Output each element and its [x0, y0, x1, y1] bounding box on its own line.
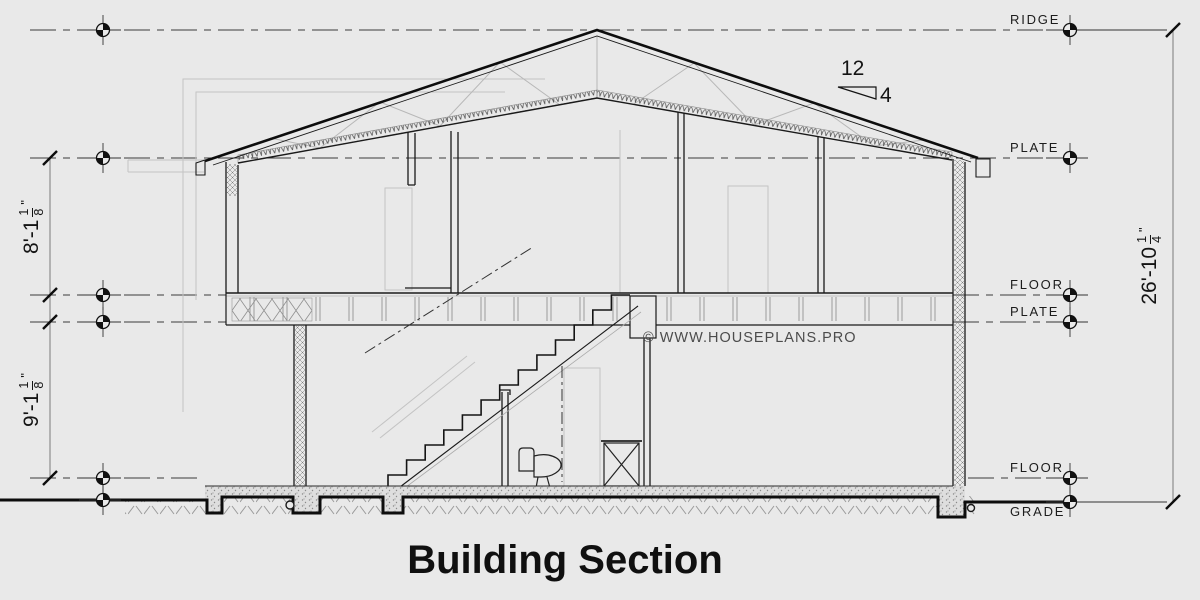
drain-symbol — [968, 505, 975, 512]
right-eave-gutter — [976, 159, 990, 177]
background-door — [728, 186, 768, 293]
stair-steps — [388, 295, 630, 490]
interior-wall-upper-2 — [818, 136, 824, 293]
pitch-triangle — [838, 87, 876, 99]
ceiling-line — [238, 98, 952, 163]
left-eave-gutter — [196, 160, 205, 175]
stairwell-wall — [405, 131, 458, 293]
level-label-floor-upper: FLOOR — [1010, 278, 1064, 291]
cabinet-symbol — [601, 441, 642, 486]
drain-symbol — [286, 501, 294, 509]
dimension-overall-height: 26'-1014" — [1135, 181, 1165, 351]
floor-insulation — [232, 298, 312, 321]
roof — [196, 30, 990, 177]
level-label-plate-lower: PLATE — [1010, 305, 1059, 318]
drawing-title: Building Section — [0, 538, 1130, 583]
building-section-sheet: RIDGE PLATE FLOOR PLATE FLOOR GRADE 8'-1… — [0, 0, 1200, 600]
floor-joists-right — [667, 297, 935, 321]
ceiling-insulation-right — [597, 90, 952, 160]
level-label-grade: GRADE — [1010, 505, 1065, 518]
dimension-lower-wall-height: 9'-118" — [17, 325, 47, 475]
level-lines — [30, 30, 1062, 478]
interior-wall-lower — [644, 338, 650, 486]
background-stair-rail — [372, 356, 475, 438]
ceiling-insulation-left — [238, 90, 597, 163]
datum-markers — [79, 15, 1088, 517]
headroom-line — [365, 247, 533, 353]
stair-stringer — [396, 306, 638, 490]
toilet-symbol — [519, 448, 561, 488]
background-structure — [128, 79, 768, 487]
level-label-plate-upper: PLATE — [1010, 141, 1059, 154]
level-label-floor-lower: FLOOR — [1010, 461, 1064, 474]
background-door — [385, 188, 412, 290]
dimension-upper-wall-height: 8'-118" — [17, 152, 47, 302]
soil-hatch — [125, 496, 975, 517]
background-door — [564, 368, 600, 487]
interior-wall-upper-1 — [678, 112, 684, 293]
pitch-run-label: 12 — [841, 58, 864, 79]
pitch-rise-label: 4 — [880, 85, 892, 106]
walls — [226, 112, 965, 488]
level-label-ridge: RIDGE — [1010, 13, 1060, 26]
watermark: © WWW.HOUSEPLANS.PRO — [643, 330, 857, 346]
